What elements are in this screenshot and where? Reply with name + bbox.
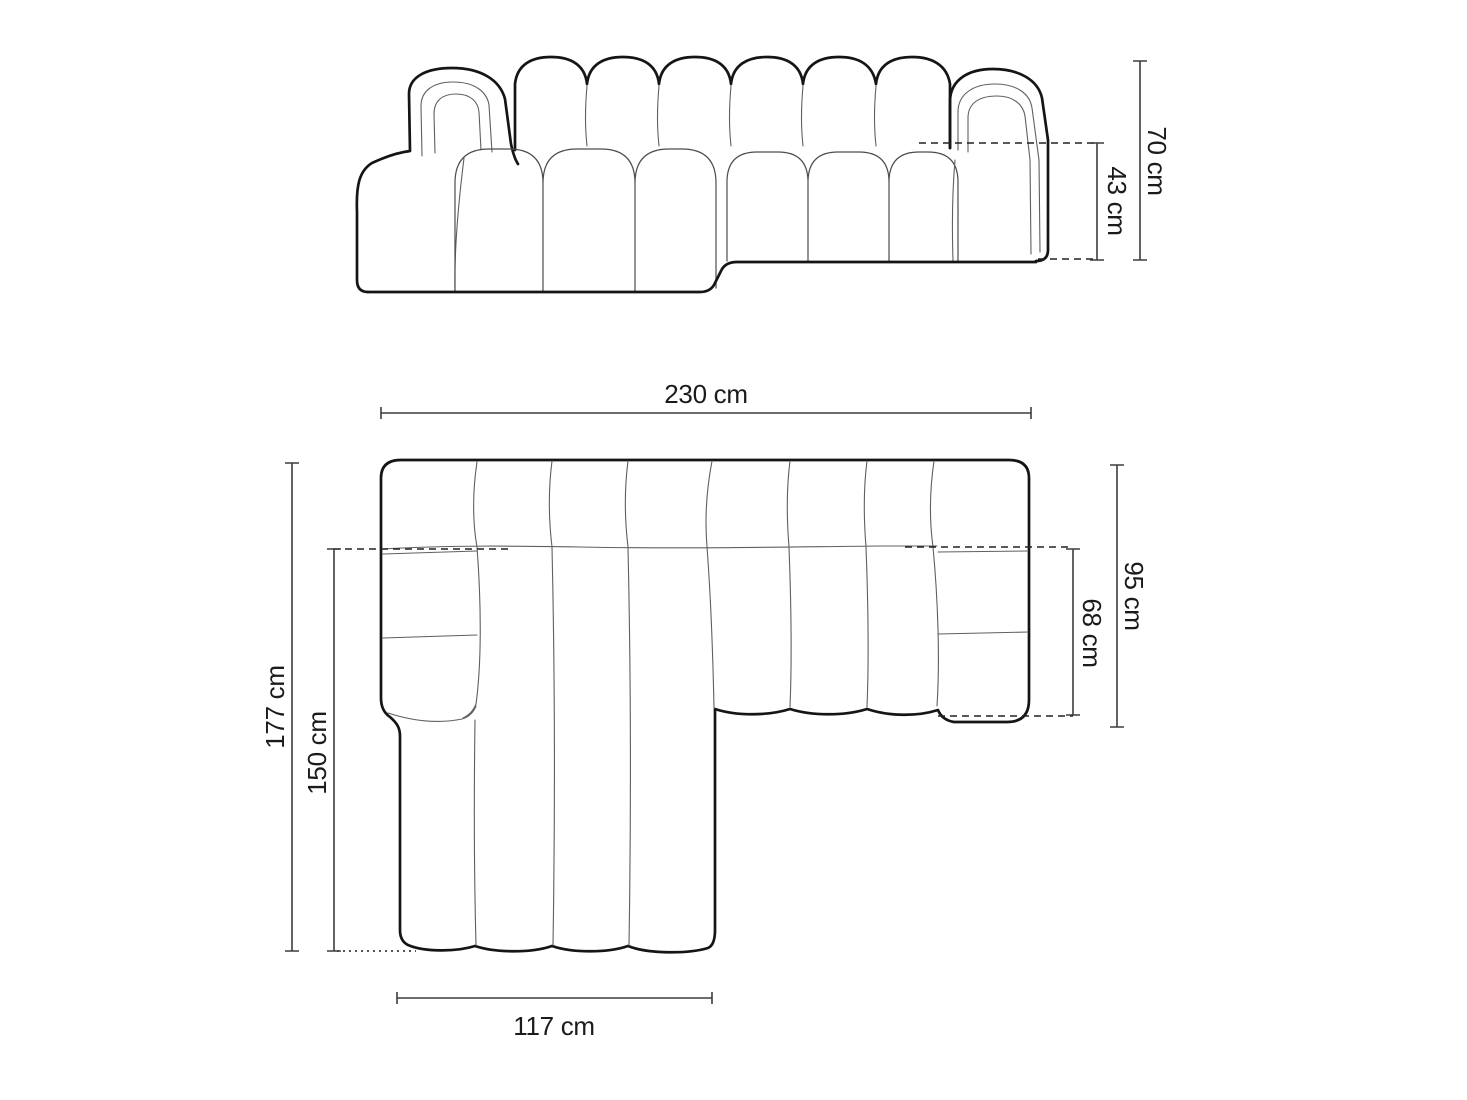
- top-channel-seams: [463, 461, 938, 945]
- diagram-canvas: 43 cm 70 cm 230 cm 177 cm: [0, 0, 1467, 1100]
- sofa-front-view: 43 cm 70 cm: [357, 57, 1172, 292]
- dim-label-70cm: 70 cm: [1142, 126, 1172, 195]
- dimension-total-height: 70 cm: [1133, 61, 1172, 260]
- front-left-armrest-inset-seams: [421, 82, 492, 291]
- front-right-armrest: [950, 69, 1048, 261]
- sofa-dimension-drawing: 43 cm 70 cm 230 cm 177 cm: [0, 0, 1467, 1100]
- front-right-armrest-inset-seams: [952, 84, 1040, 261]
- top-armrest-seams: [383, 551, 1028, 721]
- dimension-chaise-width: 117 cm: [397, 992, 712, 1041]
- front-right-cushions: [727, 152, 958, 261]
- dim-label-230cm: 230 cm: [664, 379, 747, 409]
- dimension-seat-height: 43 cm: [1090, 143, 1132, 260]
- front-backrest-channels: [515, 57, 950, 150]
- dim-label-68cm: 68 cm: [1077, 598, 1107, 667]
- dim-label-43cm: 43 cm: [1102, 166, 1132, 235]
- dim-line-43: [1090, 143, 1104, 260]
- dim-label-177cm: 177 cm: [260, 665, 290, 748]
- sofa-top-view: 230 cm 177 cm 150 cm 95 cm 68 cm 117 cm: [260, 379, 1149, 1041]
- front-base-edge: [368, 262, 1036, 292]
- dim-label-117cm: 117 cm: [513, 1011, 595, 1041]
- dimension-side-depth: 95 cm: [1110, 465, 1149, 727]
- front-chaise-cushions: [455, 149, 716, 291]
- dimension-total-depth: 177 cm: [260, 463, 299, 951]
- front-backrest-seams: [586, 86, 877, 146]
- dim-line-117: [397, 992, 712, 1004]
- dimension-total-width: 230 cm: [381, 379, 1031, 419]
- dimension-chaise-depth: 150 cm: [302, 549, 341, 951]
- dim-label-150cm: 150 cm: [302, 711, 332, 794]
- dimension-seat-depth: 68 cm: [1066, 549, 1107, 715]
- dim-label-95cm: 95 cm: [1119, 561, 1149, 630]
